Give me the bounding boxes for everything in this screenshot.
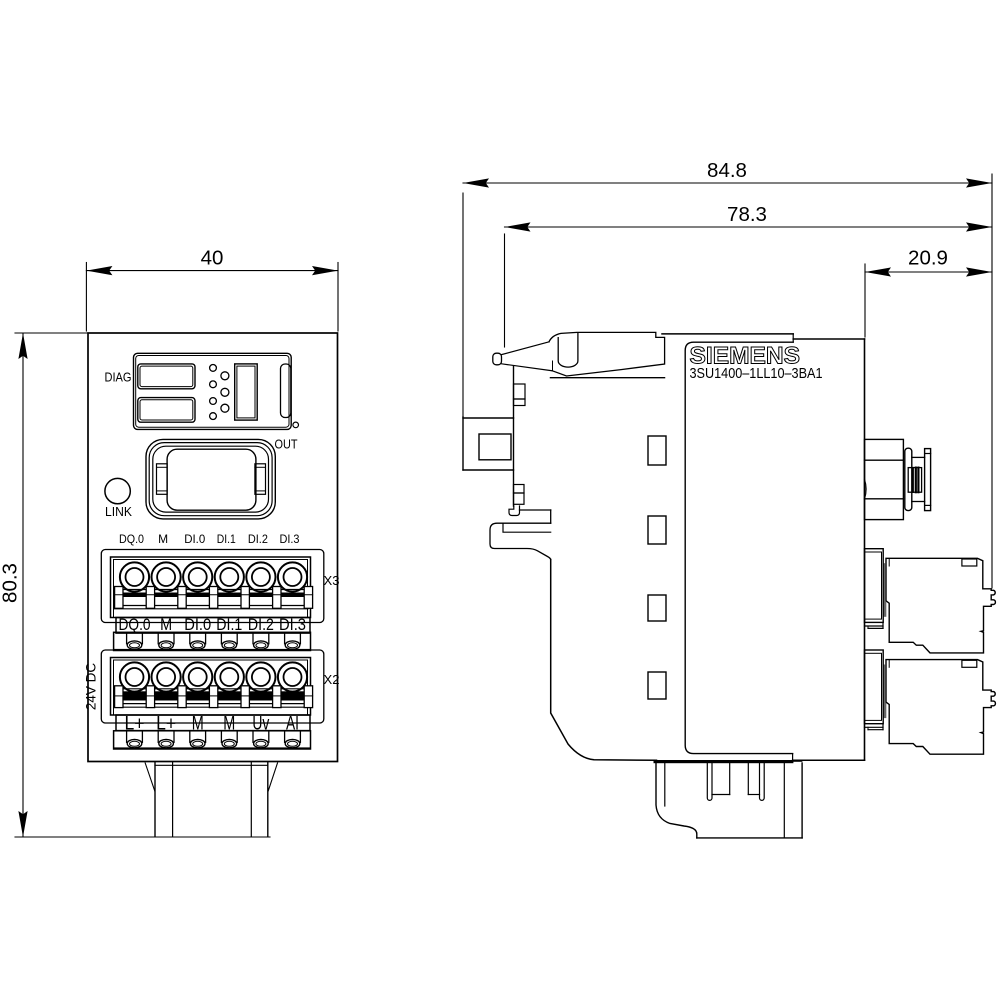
svg-text:DI.0: DI.0 <box>184 616 211 634</box>
svg-text:DI.0: DI.0 <box>184 534 205 546</box>
svg-text:84.8: 84.8 <box>707 159 747 182</box>
svg-text:M: M <box>160 616 172 634</box>
svg-text:X2: X2 <box>324 672 340 687</box>
svg-text:80.3: 80.3 <box>0 563 22 603</box>
svg-text:M: M <box>158 534 168 546</box>
svg-text:X3: X3 <box>324 573 340 588</box>
svg-text:20.9: 20.9 <box>908 247 948 270</box>
svg-text:DIAG: DIAG <box>105 371 132 385</box>
svg-text:DI.1: DI.1 <box>217 534 236 546</box>
svg-text:DI.3: DI.3 <box>280 534 300 546</box>
svg-text:78.3: 78.3 <box>727 203 767 226</box>
svg-text:3SU1400–1LL10–3BA1: 3SU1400–1LL10–3BA1 <box>690 365 823 382</box>
svg-text:DQ.0: DQ.0 <box>119 616 151 634</box>
svg-text:OUT: OUT <box>275 438 298 452</box>
svg-text:LINK: LINK <box>105 505 133 519</box>
svg-text:DI.2: DI.2 <box>248 616 274 634</box>
svg-text:DI.2: DI.2 <box>248 534 268 546</box>
svg-text:DI.1: DI.1 <box>216 616 242 634</box>
svg-text:DQ.0: DQ.0 <box>119 534 144 546</box>
svg-text:24V DC: 24V DC <box>84 663 99 711</box>
svg-text:DI.3: DI.3 <box>279 616 306 634</box>
svg-text:40: 40 <box>201 247 224 270</box>
